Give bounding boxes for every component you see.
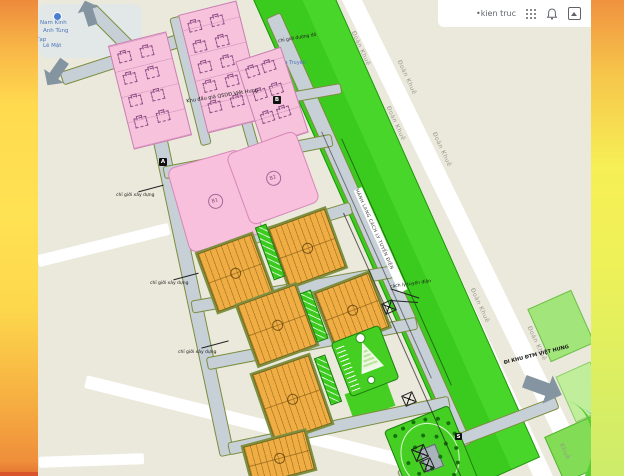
- boundary-label: chỉ giới xây dựng: [150, 281, 188, 286]
- place-label: Lê Mật: [43, 43, 61, 49]
- villa-footprint: [245, 65, 260, 79]
- villa-footprint: [207, 101, 222, 114]
- villa-footprint: [133, 115, 148, 128]
- boundary-label: chỉ giới xây dựng: [116, 193, 154, 198]
- lot-label: B2: [263, 168, 282, 187]
- strip-edge: [0, 472, 38, 476]
- app-toolbar: •kien truc: [438, 0, 591, 27]
- left-frame-strip: [0, 0, 38, 476]
- base-road: [39, 453, 144, 468]
- plaza-marker: [366, 375, 376, 385]
- villa-footprint: [260, 111, 275, 125]
- plaza-marker: [354, 332, 367, 345]
- villa-footprint: [150, 88, 165, 101]
- tree-dots: [393, 433, 398, 438]
- frame-icon[interactable]: [568, 7, 581, 20]
- villa-footprint: [123, 72, 138, 85]
- villa-footprint: [215, 35, 230, 48]
- villa-footprint: [261, 60, 276, 74]
- villa-footprint: [210, 14, 225, 27]
- villa-footprint: [202, 80, 217, 93]
- leader-line: [138, 185, 163, 193]
- base-road: [37, 223, 171, 267]
- account-label[interactable]: •kien truc: [476, 9, 516, 18]
- section-marker-b: B: [273, 96, 281, 104]
- villa-footprint: [156, 110, 171, 123]
- villa-footprint: [269, 83, 284, 97]
- right-frame-strip: [591, 0, 624, 476]
- villa-footprint: [220, 55, 235, 68]
- villa-footprint: [128, 94, 143, 107]
- apps-grid-icon[interactable]: [526, 9, 536, 19]
- villa-footprint: [117, 51, 132, 64]
- parking-stalls: [335, 344, 361, 392]
- section-marker-a: A: [159, 158, 167, 166]
- section-marker-s: S: [455, 433, 462, 440]
- villa-footprint: [145, 67, 160, 80]
- place-label: Nam Kinh: [40, 20, 67, 26]
- villa-footprint: [225, 75, 240, 88]
- lot-label: B1: [206, 192, 225, 211]
- villa-footprint: [187, 20, 202, 33]
- place-label: Anh Tùng: [43, 28, 69, 34]
- villa-footprint: [139, 45, 154, 58]
- plaza-triangle-hatch: [353, 342, 382, 373]
- villa-footprint: [276, 105, 291, 119]
- bell-icon[interactable]: [546, 8, 558, 20]
- villa-footprint: [197, 60, 212, 73]
- planning-map-screenshot: Nam Kinh Anh Tùng Tạp Lê Mật Văn Gia Tru…: [0, 0, 624, 476]
- boundary-label: chỉ giới xây dựng: [178, 350, 216, 355]
- villa-footprint: [192, 40, 207, 53]
